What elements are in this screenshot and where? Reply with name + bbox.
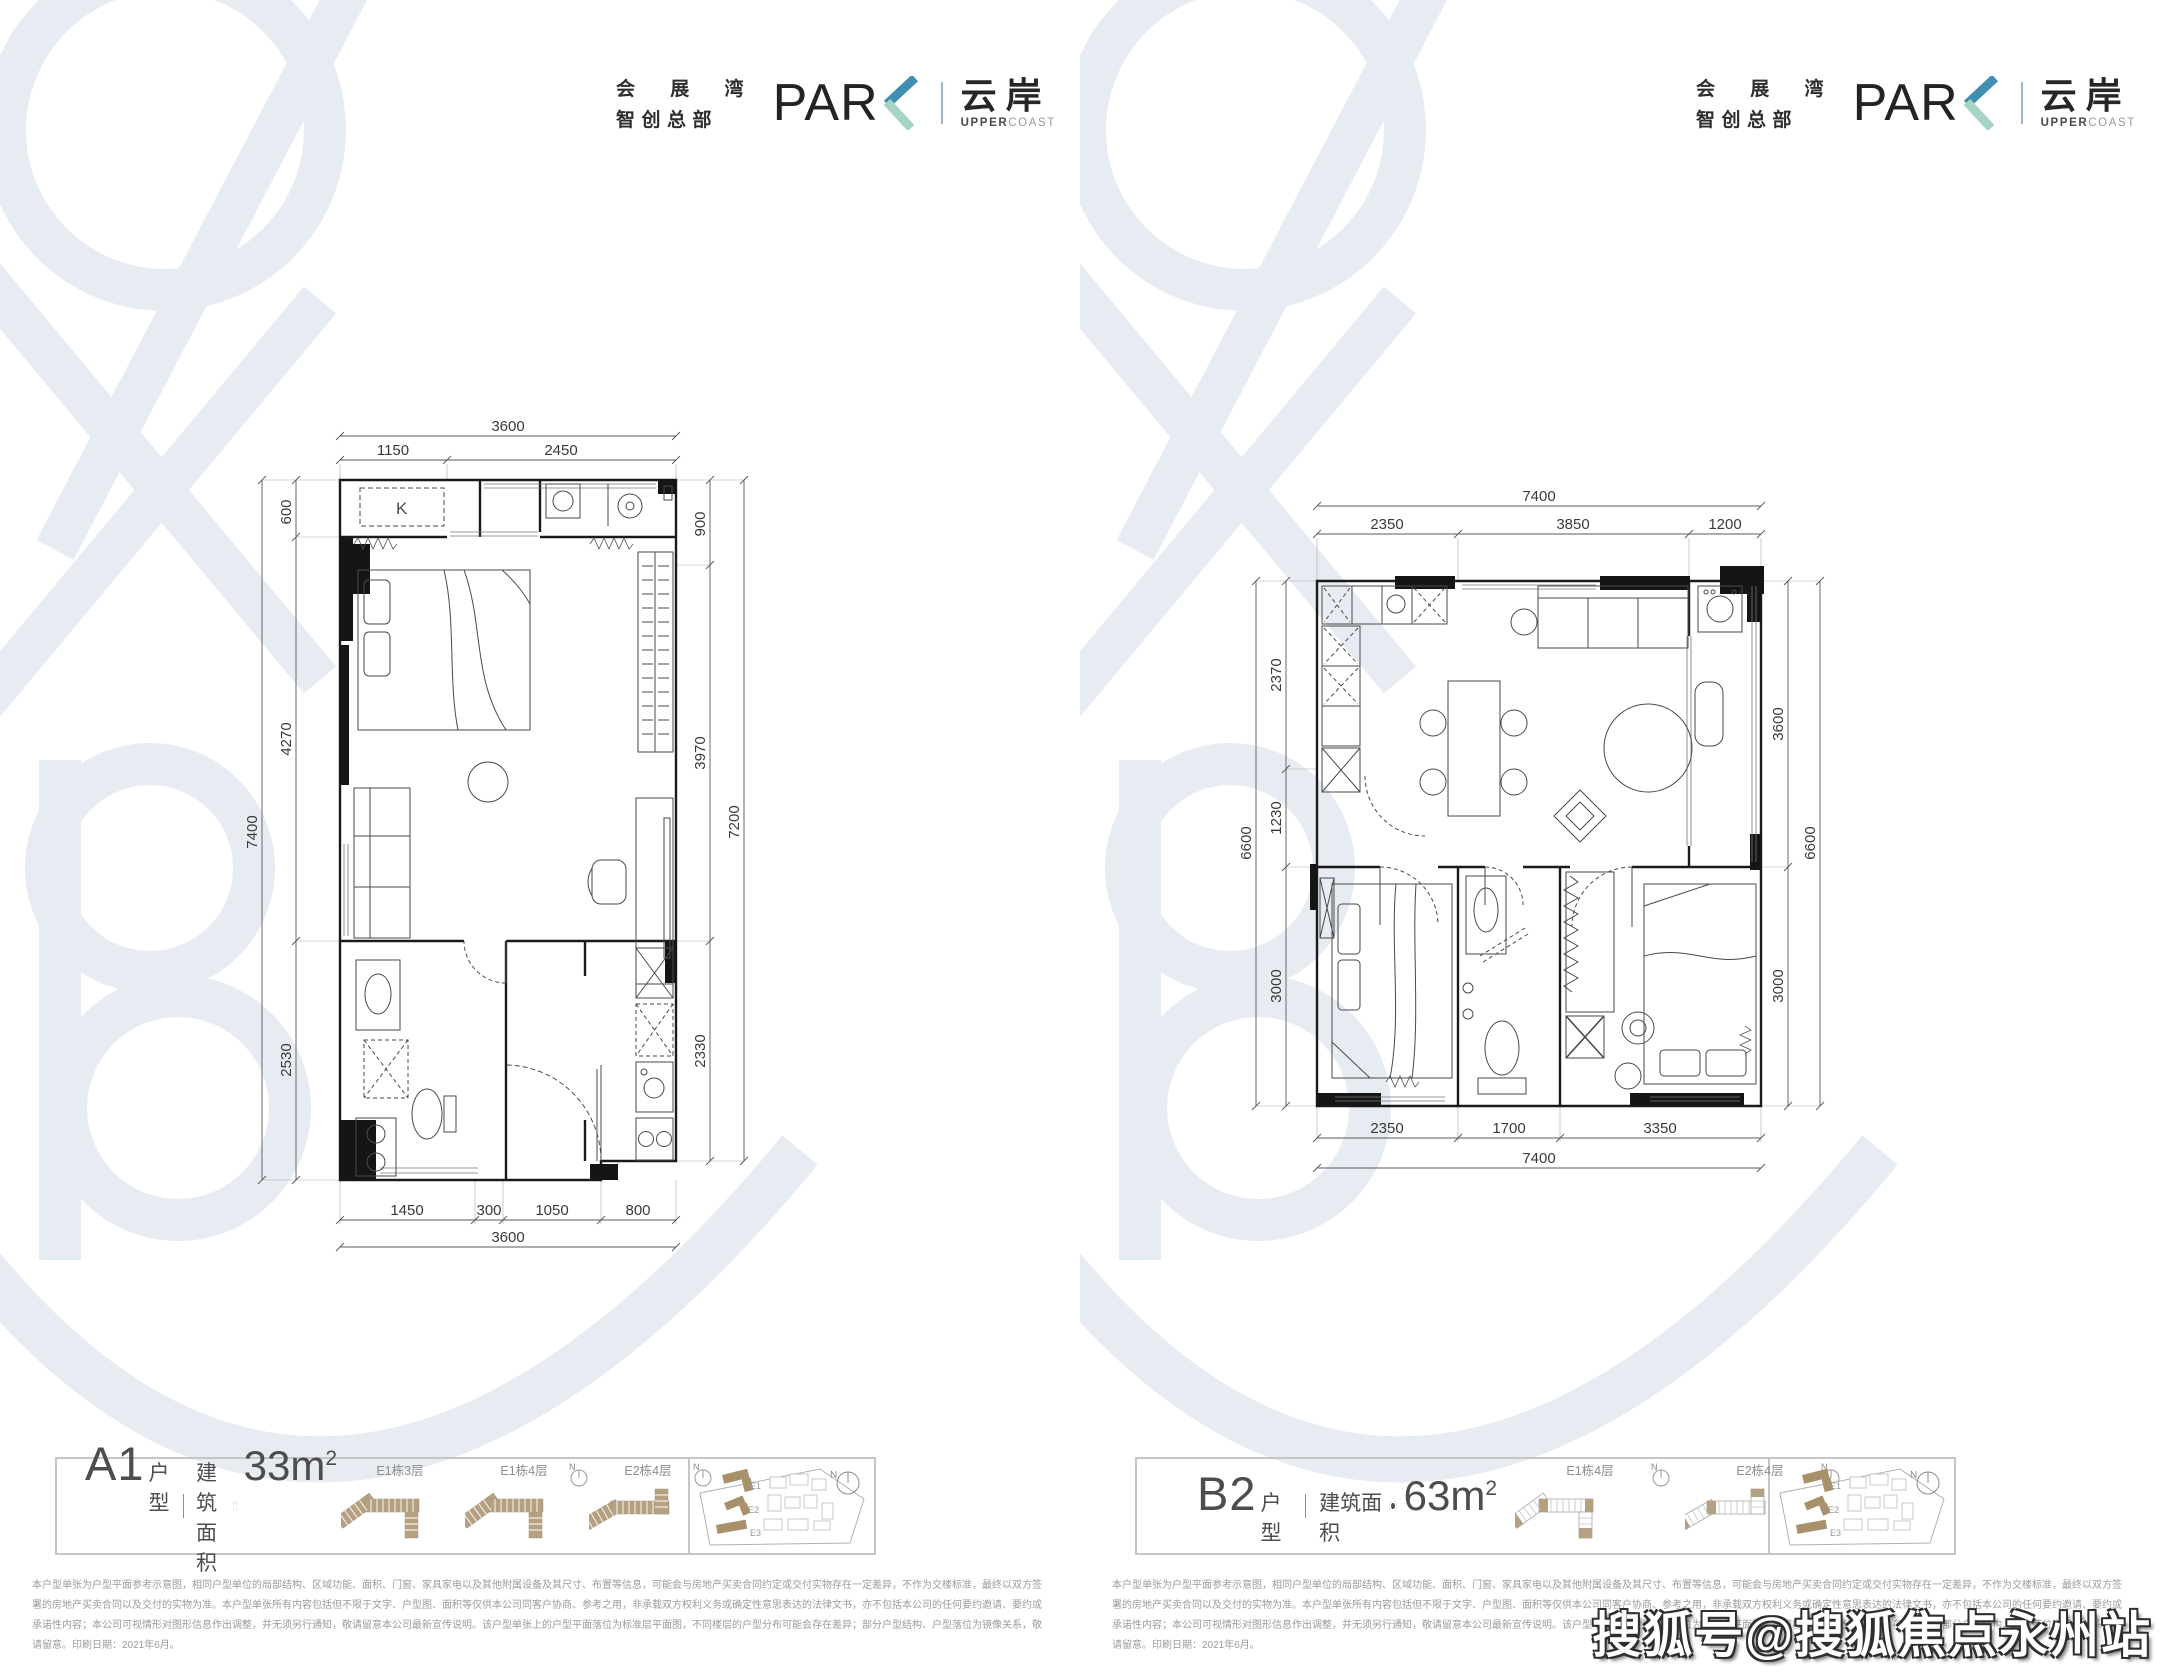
windows [344,484,656,1173]
site-label: E2 [748,1505,759,1515]
compass-icon: N [567,1461,589,1487]
site-label: E1 [750,1481,761,1491]
brand-cn-line2: 智创总部 [1696,105,1839,132]
dim-label: 1200 [1708,516,1741,533]
dim-label: 3600 [491,1229,524,1246]
area-label: 建筑面积 [1319,1487,1382,1547]
panel-b2: 会 展 湾 智创总部 PAR 云岸 UPPERCOAST [1080,0,2160,1673]
dim-label: 1450 [390,1202,423,1219]
brand-park-text: PAR [773,77,879,129]
bedroom2 [1320,878,1452,1078]
dim-label: 7400 [1522,1150,1555,1167]
dim-label: 2330 [692,1034,709,1067]
park-k-glyph-icon [881,76,921,130]
dim-label: 2350 [1370,1120,1403,1137]
dim-label: 800 [625,1202,650,1219]
rug [1604,704,1692,792]
dim-label: 1050 [535,1202,568,1219]
unit-title: B2 户型 建筑面积 63m2 [1137,1466,1497,1547]
dim-label: 7400 [244,815,261,848]
dim-label: 3000 [1268,969,1285,1002]
site-plan-box: E1 E2 E3 N [1770,1457,1956,1555]
windows [1335,585,1756,1101]
top-bathroom [546,484,672,526]
dim-label: 1700 [1492,1120,1525,1137]
dimension-labels: 3600 1150 2450 1450 300 1050 800 3600 60… [244,420,743,1246]
brand-cn-line1: 会 展 湾 [616,74,759,101]
mini-diagram-2: E1栋4层 N [465,1463,583,1550]
panel-a1: 会 展 湾 智创总部 PAR 云岸 UPPERCOAST [0,0,1080,1673]
ac-k-mark: K [396,499,408,518]
unit-code: A1 [85,1436,145,1491]
master-bedroom [1564,872,1756,1089]
building-footprint-icon [465,1479,583,1545]
dining-set [1420,681,1527,816]
walls [1317,581,1761,1106]
dim-label: 6600 [1802,826,1819,859]
wall-fills [1310,566,1764,1106]
dim-label: 1230 [1268,801,1285,834]
divider [1305,1494,1306,1518]
dim-label: 4270 [278,722,295,755]
mini-diagram-row: E1栋3层 E1栋4层 N [341,1463,707,1550]
unit-suffix: 户型 [1261,1487,1293,1547]
floorplan-b2: 7400 2350 3850 1200 2350 1700 3350 7400 … [1240,486,1840,1206]
building-footprint-icon [1515,1479,1633,1545]
bed [358,570,530,730]
logo-divider [2021,82,2023,124]
site-plan: E1 E2 E3 N [1772,1463,1952,1549]
park-k-glyph-icon [1961,76,2001,130]
extension-lines [262,464,744,1224]
site-plan-box: E1 E2 E3 N [690,1457,876,1555]
dim-label: 300 [476,1202,501,1219]
doors [1365,776,1632,927]
sofa [354,788,410,938]
sohu-watermark: 搜狐号@搜狐焦点永州站 [1592,1596,2152,1667]
watermark-letter-e [1085,0,1405,290]
floorplan-a1: 3600 1150 2450 1450 300 1050 800 3600 60… [240,420,800,1270]
site-label: E3 [1830,1528,1841,1538]
dim-label: 600 [278,499,295,524]
dim-label: 2350 [1370,516,1403,533]
sofa [1511,586,1688,648]
building-footprint-icon [341,1479,459,1545]
site-label: E1 [1830,1481,1841,1491]
wardrobe [638,552,673,752]
mini-diagram-1: E1栋3层 [341,1463,459,1550]
furniture: K [354,484,673,1176]
brand-cn-line2: 智创总部 [616,105,759,132]
svg-text:N: N [569,1462,576,1472]
area-label: 建筑面积 [196,1457,226,1577]
kitchen [1322,586,1447,792]
furniture [1320,586,1756,1094]
round-table [468,762,508,802]
unit-code: B2 [1197,1466,1257,1521]
flyer-page: { "brand": { "cn_top": "会 展 湾", "cn_bott… [0,0,2160,1673]
unit-info-bar: A1 户型 建筑面积 33m2 E1栋3层 [55,1457,690,1555]
dimension-lines [258,432,748,1251]
dim-label: 7400 [1522,488,1555,505]
disclaimer-text: 本户型单张为户型平面参考示意图，相同户型单位的局部结构、区域功能、面积、门窗、家… [32,1576,1042,1656]
area-dot-icon [1389,1501,1397,1511]
dim-label: 7200 [726,805,743,838]
brand-logo: 会 展 湾 智创总部 PAR 云岸 UPPERCOAST [1696,74,2136,132]
unit-title: A1 户型 建筑面积 33m2 [57,1436,337,1577]
dim-label: 3000 [1770,969,1787,1002]
doors [464,941,601,1161]
unit-info-bar: B2 户型 建筑面积 63m2 E1栋4层 N [1135,1457,1770,1555]
area-value: 33m2 [244,1442,337,1490]
svg-text:N: N [830,1470,837,1481]
watermark-letter-e [5,0,325,290]
dim-label: 3600 [1770,707,1787,740]
desk-and-chair [588,798,673,984]
svg-text:N: N [1910,1470,1917,1481]
floor-cushion [1554,790,1606,842]
brand-name-cn: 云岸 [961,77,1051,115]
site-label: E3 [750,1528,761,1538]
dim-label: 2450 [544,442,577,459]
brand-name-cn: 云岸 [2041,77,2131,115]
area-dot-icon [233,1501,237,1511]
brand-name-en: UPPERCOAST [2041,117,2136,129]
dim-label: 2530 [278,1043,295,1076]
brand-park-text: PAR [1853,77,1959,129]
dim-label: 3350 [1643,1120,1676,1137]
divider [183,1494,184,1518]
insulation-marks [354,538,633,549]
area-value: 63m2 [1404,1472,1497,1520]
dim-label: 3970 [692,736,709,769]
dim-label: 3600 [491,420,524,435]
dim-label: 6600 [1240,826,1255,859]
brand-name-en: UPPERCOAST [961,117,1056,129]
coffee-table [1695,682,1723,746]
mini-diagram-1: E1栋4层 N [1501,1463,1665,1550]
dim-label: 2370 [1268,658,1285,691]
svg-text:N: N [1651,1462,1658,1472]
dim-label: 3850 [1556,516,1589,533]
logo-divider [941,82,943,124]
site-label: E2 [1828,1505,1839,1515]
dim-label: 900 [692,511,709,536]
bathroom [1463,876,1528,1094]
unit-suffix: 户型 [149,1457,170,1517]
brand-logo: 会 展 湾 智创总部 PAR 云岸 UPPERCOAST [616,74,1056,132]
compass-icon: N [1649,1461,1671,1487]
site-plan: E1 E2 E3 N [692,1463,872,1549]
dim-label: 1150 [377,442,409,459]
brand-cn-line1: 会 展 湾 [1696,74,1839,101]
